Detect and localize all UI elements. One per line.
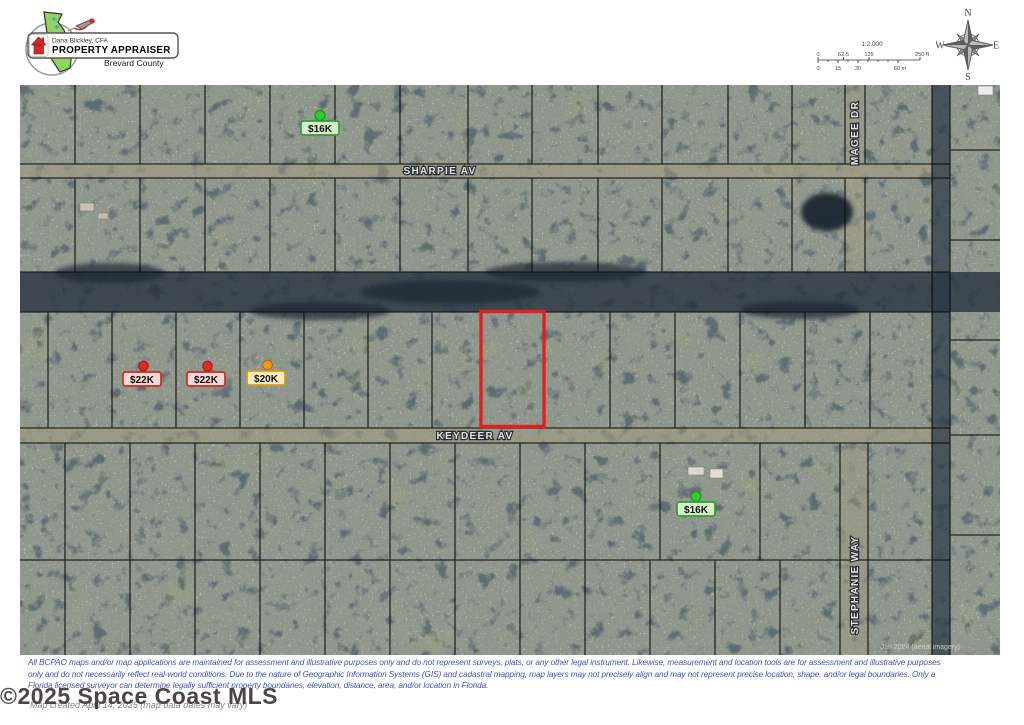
mls-watermark: ©2025 Space Coast MLS <box>0 683 278 710</box>
pin-head-icon <box>203 361 213 371</box>
disclaimer-line: All BCPAO maps and/or map applications a… <box>28 657 1003 669</box>
imagery-credit: Jan 2024 (aerial imagery) <box>881 644 960 651</box>
map-canvas: SHARPIE AV KEYDEER AV MAGEE DR STEPHANIE… <box>20 85 1000 655</box>
compass-center <box>966 43 970 47</box>
price-label: $16K <box>684 505 709 516</box>
compass-north: N <box>964 8 971 19</box>
street-label-sharpie-av: SHARPIE AV <box>403 166 476 177</box>
pin-head-icon <box>315 111 325 121</box>
lake-dot-icon <box>55 25 59 29</box>
price-label: $22K <box>130 375 155 386</box>
compass-south: S <box>965 72 971 82</box>
scale-bar: 1:2,000 0 62.5 125 250 ft 0 15 30 60 m <box>810 36 934 76</box>
county-name: Brevard County <box>104 58 164 68</box>
street-label-magee-dr: MAGEE DR <box>850 101 861 165</box>
rocket-icon <box>68 18 95 31</box>
scale-m-tick: 30 <box>855 66 861 72</box>
compass-east: E <box>993 41 999 52</box>
bcpao-logo: Dana Blickley, CFA PROPERTY APPRAISER Br… <box>24 6 224 82</box>
street-label-stephanie-way: STEPHANIE WAY <box>850 536 861 635</box>
price-label: $20K <box>254 374 279 385</box>
house-icon <box>30 35 49 57</box>
appraiser-name: Dana Blickley, CFA <box>52 38 109 45</box>
pin-head-icon <box>139 361 149 371</box>
pin-head-icon <box>691 492 701 502</box>
street-label-keydeer-av: KEYDEER AV <box>437 431 514 442</box>
appraiser-title: PROPERTY APPRAISER <box>52 45 171 56</box>
scale-m-tick: 0 <box>816 66 819 72</box>
price-label: $22K <box>194 375 219 386</box>
compass-rose: N S W E <box>936 6 1000 82</box>
scale-bar-line <box>818 57 920 63</box>
pin-head-icon <box>263 360 273 370</box>
scale-ratio: 1:2,000 <box>861 41 883 48</box>
lake-dot-icon <box>52 17 55 20</box>
price-label: $16K <box>308 124 333 135</box>
scale-m-tick: 15 <box>835 66 841 72</box>
compass-west: W <box>936 41 945 52</box>
map-export-page: Dana Blickley, CFA PROPERTY APPRAISER Br… <box>0 0 1024 725</box>
scale-ft-tick: 250 ft <box>915 52 929 58</box>
disclaimer-line: only and do not necessarily reflect real… <box>28 669 1003 681</box>
scale-m-tick: 60 m <box>894 66 907 72</box>
